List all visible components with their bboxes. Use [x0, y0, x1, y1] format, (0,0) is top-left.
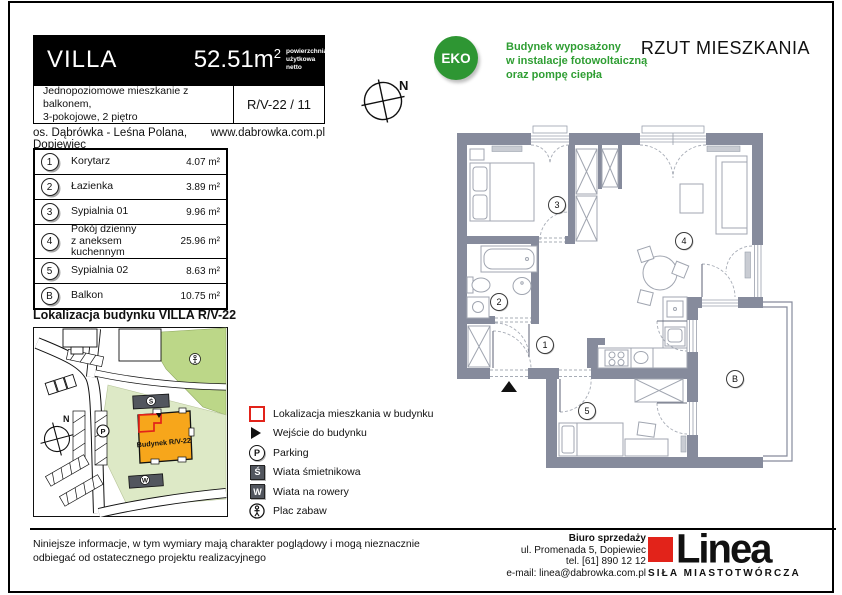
area-note: powierzchnia użytkowa netto — [286, 48, 320, 72]
room-name: Sypialnia 01 — [64, 206, 168, 218]
map-trash-shelter: Ś — [133, 394, 170, 409]
page-title: RZUT MIESZKANIA — [641, 38, 810, 59]
bed-single — [559, 423, 623, 456]
room-label: 2 — [491, 294, 509, 312]
location-map-title: Lokalizacja budynku VILLA R/V-22 — [33, 308, 236, 322]
room-number-badge: 1 — [41, 153, 59, 171]
table-row: 5 Sypialnia 02 8.63 m² — [35, 258, 226, 283]
legend-item: Wejście do budynku — [249, 424, 439, 444]
wardrobe — [635, 379, 683, 402]
room-name: Pokój dzienny z aneksem kuchennym — [64, 224, 168, 259]
bike-shelter-icon: W — [250, 484, 265, 499]
room-name: Łazienka — [64, 181, 168, 193]
room-area: 4.07 m² — [168, 157, 226, 168]
wardrobe — [576, 149, 618, 241]
svg-text:2: 2 — [496, 297, 501, 307]
room-number-badge: 4 — [41, 233, 59, 251]
office-phone: tel. [61] 890 12 12 — [506, 556, 646, 568]
svg-text:5: 5 — [584, 406, 589, 416]
room-area: 25.96 m² — [168, 236, 226, 247]
svg-text:W: W — [142, 478, 149, 485]
table-row: B Balkon 10.75 m² — [35, 283, 226, 308]
room-area: 3.89 m² — [168, 182, 226, 193]
room-label: B — [727, 371, 745, 389]
room-area: 10.75 m² — [168, 291, 226, 302]
rooms-table: 1 Korytarz 4.07 m² 2 Łazienka 3.89 m² 3 … — [33, 148, 228, 310]
coffee-table — [680, 184, 703, 213]
legend-label: Plac zabaw — [273, 505, 327, 517]
room-label: 4 — [676, 233, 694, 251]
nightstand — [470, 149, 484, 160]
legend-item: Lokalizacja mieszkania w budynku — [249, 404, 439, 424]
unit-code: R/V-22 / 11 — [233, 86, 324, 123]
office-email: e-mail: linea@dabrowka.com.pl — [506, 568, 646, 580]
desk — [625, 439, 668, 456]
room-name: Korytarz — [64, 156, 168, 168]
linea-logo-red-square — [648, 537, 673, 562]
apartment-location-icon — [249, 406, 265, 422]
building-entrance-icon — [251, 427, 261, 439]
usable-area: 52.51m2 — [194, 46, 281, 74]
eko-description: Budynek wyposażony w instalacje fotowolt… — [506, 40, 647, 82]
room-name: Sypialnia 02 — [64, 265, 168, 277]
washing-machine — [467, 297, 489, 318]
sofa — [716, 156, 747, 234]
room-label: 3 — [549, 197, 567, 215]
toilet — [467, 277, 490, 293]
unit-description: Jednopoziomowe mieszkanie z balkonem, 3-… — [34, 86, 233, 123]
table-row: 2 Łazienka 3.89 m² — [35, 174, 226, 199]
legend-item: Plac zabaw — [249, 502, 439, 522]
area-unit: m — [254, 46, 274, 73]
map-parking-icon: P — [97, 425, 109, 437]
legend-label: Wiata na rowery — [273, 486, 349, 498]
table-row: 3 Sypialnia 01 9.96 m² — [35, 199, 226, 224]
trash-shelter-icon: Ś — [250, 465, 265, 480]
balcony-railing — [763, 302, 792, 461]
wardrobe — [468, 326, 490, 367]
map-building-rv22: Budynek R/V-22 — [136, 408, 194, 464]
room-number-badge: 3 — [41, 203, 59, 221]
room-label: 1 — [537, 337, 555, 355]
unit-info-box: Jednopoziomowe mieszkanie z balkonem, 3-… — [33, 85, 325, 124]
legend-item: W Wiata na rowery — [249, 482, 439, 502]
parking-icon: P — [249, 445, 265, 461]
bathtub — [481, 246, 537, 272]
floor-plan: 1 2 3 4 5 — [435, 105, 835, 530]
room-name: Balkon — [64, 290, 168, 302]
location-map: Ś W Budynek R/V-22 P — [33, 327, 228, 522]
room-area: 9.96 m² — [168, 207, 226, 218]
table-row: 4 Pokój dzienny z aneksem kuchennym 25.9… — [35, 224, 226, 258]
kitchen-counter — [598, 297, 687, 368]
svg-text:3: 3 — [554, 200, 559, 210]
map-legend: Lokalizacja mieszkania w budynku Wejście… — [249, 404, 439, 521]
brand-name: VILLA — [47, 46, 117, 74]
room-label: 5 — [579, 403, 597, 421]
room-number-badge: 5 — [41, 262, 59, 280]
sink — [513, 278, 531, 295]
legend-label: Parking — [273, 447, 309, 459]
area-block: 52.51m2 powierzchnia użytkowa netto — [194, 46, 320, 74]
svg-text:1: 1 — [542, 340, 547, 350]
legend-label: Wejście do budynku — [273, 427, 367, 439]
svg-text:N: N — [63, 414, 70, 424]
legend-label: Lokalizacja mieszkania w budynku — [273, 408, 434, 420]
legend-label: Wiata śmietnikowa — [273, 466, 361, 478]
legend-item: Ś Wiata śmietnikowa — [249, 463, 439, 483]
flyer-page: VILLA 52.51m2 powierzchnia użytkowa nett… — [0, 0, 842, 595]
compass-north-label: N — [399, 78, 408, 93]
map-bike-shelter: W — [129, 474, 164, 488]
room-number-badge: B — [41, 287, 59, 305]
svg-text:4: 4 — [681, 236, 686, 246]
area-sup: 2 — [274, 46, 281, 61]
linea-logo-wordmark: Linea — [676, 531, 770, 568]
linea-logo: Linea SIŁA MIASTOTWÓRCZA — [648, 531, 832, 579]
eko-badge: EKO — [434, 36, 478, 80]
room-area: 8.63 m² — [168, 266, 226, 277]
sales-office-contact: Biuro sprzedaży ul. Promenada 5, Dopiewi… — [506, 533, 646, 579]
header-black-box: VILLA 52.51m2 powierzchnia użytkowa nett… — [33, 35, 325, 85]
entrance-arrow-icon — [501, 381, 517, 392]
office-title: Biuro sprzedaży — [506, 533, 646, 545]
footer-disclaimer: Niniejsze informacje, w tym wymiary mają… — [33, 537, 420, 565]
playground-icon — [249, 503, 265, 519]
svg-text:Ś: Ś — [149, 397, 154, 406]
office-address: ul. Promenada 5, Dopiewiec — [506, 545, 646, 557]
table-row: 1 Korytarz 4.07 m² — [35, 150, 226, 174]
plan-room-labels: 1 2 3 4 5 — [491, 197, 745, 421]
svg-text:P: P — [100, 427, 105, 436]
map-playground-icon — [190, 354, 201, 365]
legend-item: P Parking — [249, 443, 439, 463]
chair — [637, 422, 656, 437]
location-map-drawing: Ś W Budynek R/V-22 P — [33, 327, 228, 517]
room-number-badge: 2 — [41, 178, 59, 196]
svg-text:B: B — [732, 374, 738, 384]
area-value: 52.51 — [194, 46, 254, 73]
